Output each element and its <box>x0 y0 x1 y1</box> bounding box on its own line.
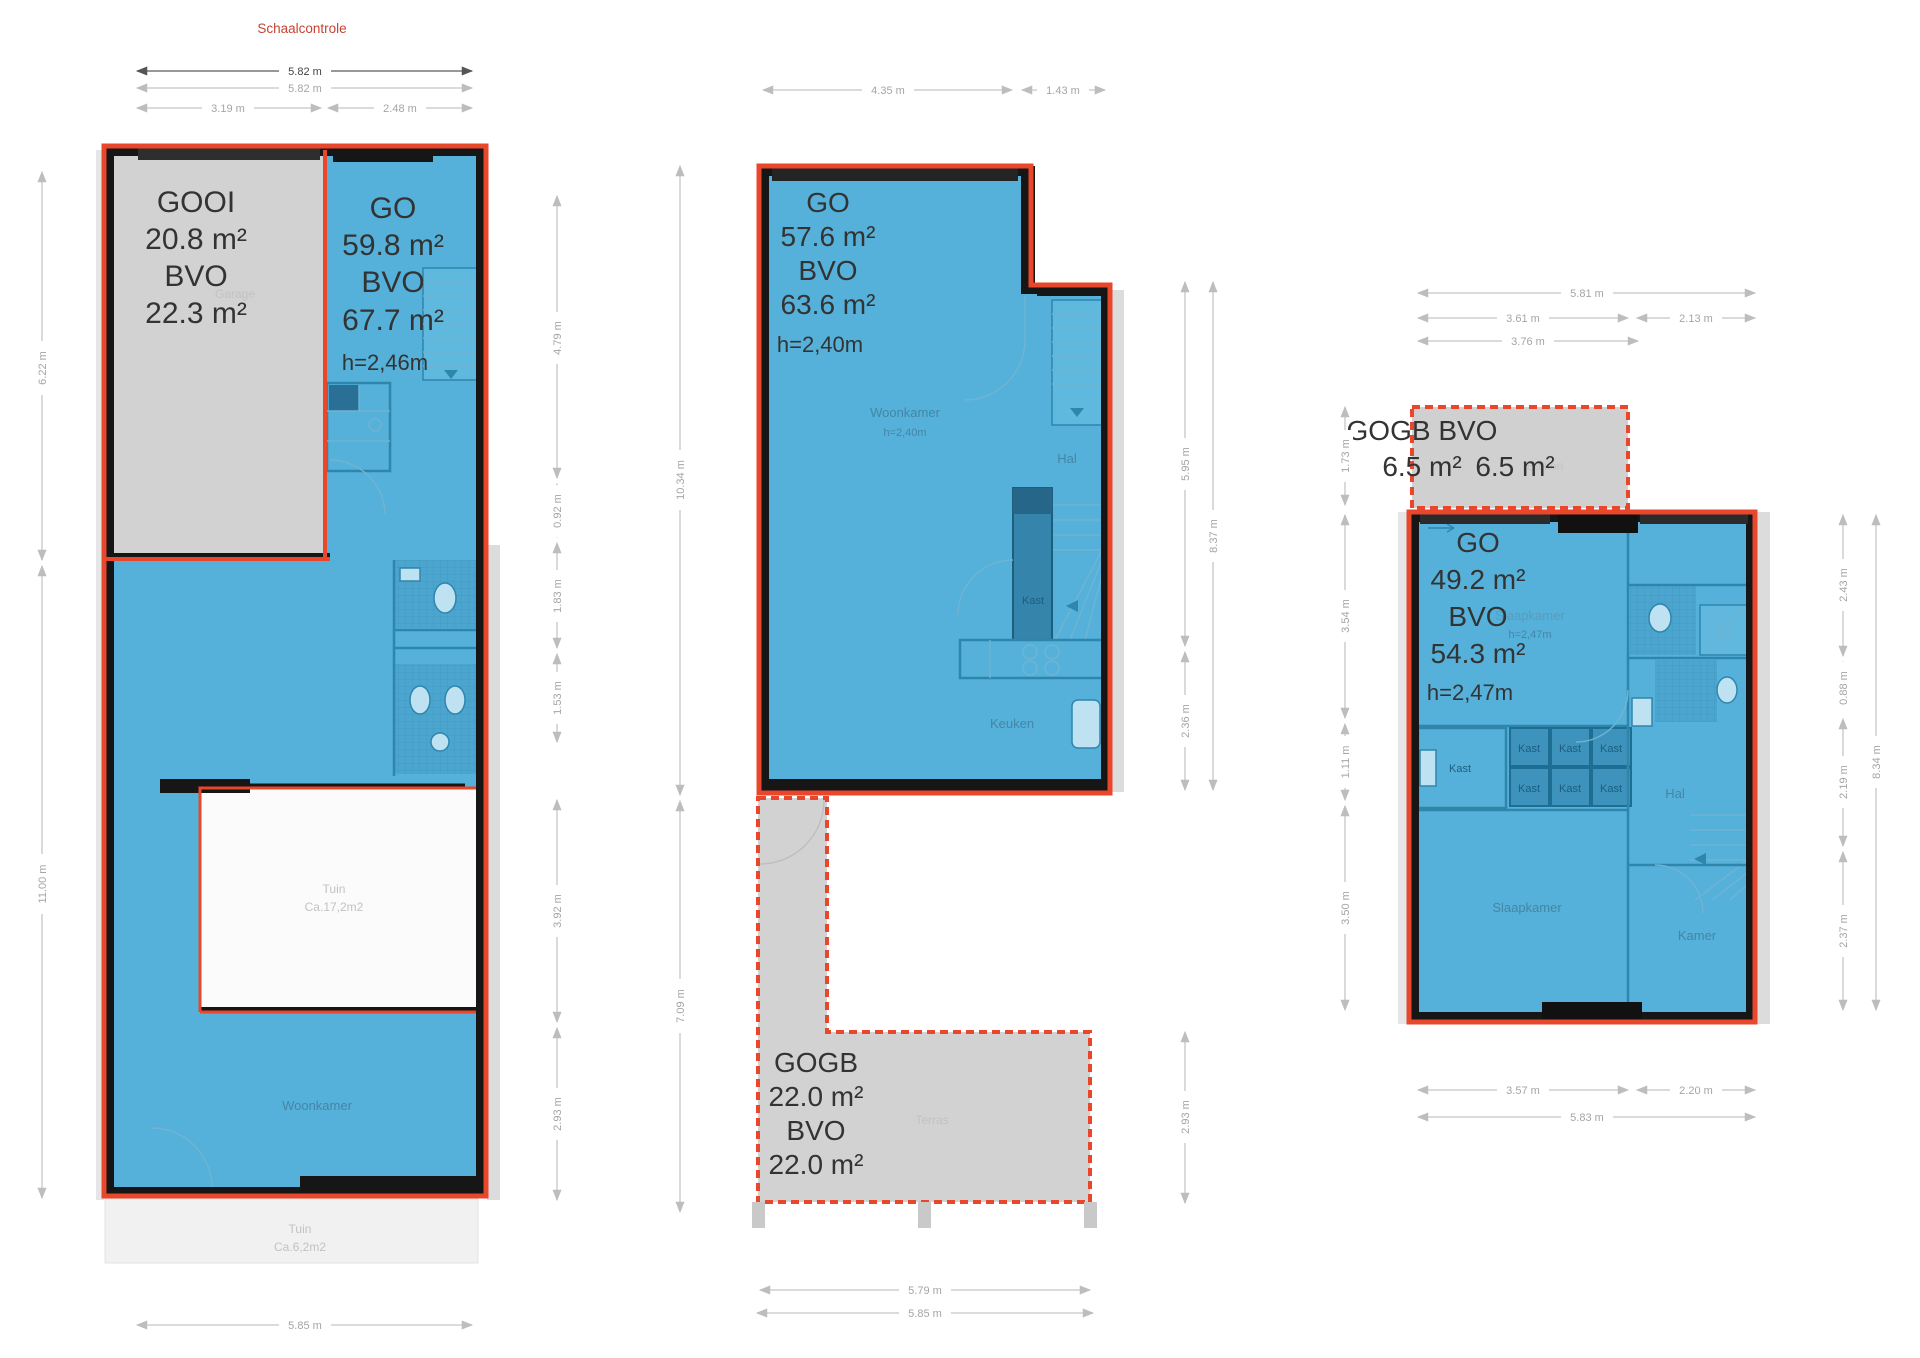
dim-label: 8.37 m <box>1208 519 1220 553</box>
room-height-woonkamer: h=2,40m <box>883 427 926 439</box>
dim-p1-right-6: 2.93 m <box>549 1028 565 1200</box>
dim-p1-top-total2: 5.82 m <box>137 81 472 96</box>
plan2-post <box>752 1202 765 1228</box>
dim-p1-right-1: 4.79 m <box>549 196 565 478</box>
dim-label: 10.34 m <box>675 460 687 500</box>
plan3-mat-right <box>1756 512 1770 1024</box>
dim-label: 2.19 m <box>1838 765 1850 799</box>
dim-label: 1.43 m <box>1046 85 1080 97</box>
dim-p3-right-1: 2.43 m <box>1835 515 1851 656</box>
plan1-wall-chunk-1 <box>160 779 250 793</box>
room-label-woonkamer: Woonkamer <box>282 1098 353 1113</box>
dim-label: 3.92 m <box>552 894 564 928</box>
room-label-kast: Kast <box>1518 783 1540 795</box>
dim-label: 1.73 m <box>1340 439 1352 473</box>
dim-label: 2.43 m <box>1838 568 1850 602</box>
plan3-wall-top-3 <box>1640 514 1748 524</box>
plan3-wall-top-1 <box>1420 514 1550 524</box>
area-label: 22.3 m² <box>145 297 247 330</box>
dim-label: 3.54 m <box>1340 599 1352 633</box>
dim-p3-right-2: 0.88 m <box>1835 662 1851 714</box>
room-label-garage: Garage <box>215 287 255 301</box>
plan2-post <box>1084 1202 1097 1228</box>
dim-label: 2.37 m <box>1838 914 1850 948</box>
area-label: GOOI <box>157 186 235 219</box>
area-label: BVO <box>798 255 857 286</box>
height-label: h=2,47m <box>1427 680 1513 705</box>
dim-p3-right-total: 8.34 m <box>1868 515 1884 1010</box>
dim-label: 2.48 m <box>383 103 417 115</box>
room-label-hal: Hal <box>1057 451 1077 466</box>
dim-p1-right-3: 1.83 m <box>549 543 565 648</box>
dim-label: 0.88 m <box>1838 671 1850 705</box>
area-label: 6.5 m² <box>1382 451 1461 482</box>
dim-label: 2.20 m <box>1679 1085 1713 1097</box>
dim-p2-left-lower: 7.09 m <box>672 801 688 1212</box>
dim-p3-left-4: 3.50 m <box>1337 806 1353 1010</box>
plan1-mat-right <box>487 545 500 1200</box>
page-title: Schaalcontrole <box>257 21 346 36</box>
floorplan-first-floor: GO 57.6 m² BVO 63.6 m² h=2,40m Woonkamer… <box>672 83 1221 1320</box>
dim-label: 2.13 m <box>1679 313 1713 325</box>
dim-label: 3.19 m <box>211 103 245 115</box>
area-label: 54.3 m² <box>1431 638 1526 669</box>
dim-p1-top-left: 3.19 m <box>137 101 321 116</box>
room-label-hal: Hal <box>1665 786 1685 801</box>
floorplan-second-floor: Balkon GOGB BVO 6.5 m² 6.5 m² <box>1337 286 1884 1124</box>
area-label: 20.8 m² <box>145 223 247 256</box>
dim-p1-left-upper: 6.22 m <box>34 172 50 560</box>
dim-label: 5.82 m <box>288 83 322 95</box>
dim-p3-left-2: 3.54 m <box>1337 515 1353 718</box>
dim-label: 5.83 m <box>1570 1112 1604 1124</box>
area-label: BVO <box>361 266 424 299</box>
area-label: 49.2 m² <box>1431 564 1526 595</box>
dim-label: 3.76 m <box>1511 336 1545 348</box>
dim-label: 1.83 m <box>552 579 564 613</box>
dim-label: 2.93 m <box>552 1097 564 1131</box>
dim-label: 1.53 m <box>552 681 564 715</box>
area-label: 22.0 m² <box>769 1081 864 1112</box>
floorplan-canvas: Schaalcontrole <box>0 0 1920 1358</box>
height-label: h=2,40m <box>777 332 863 357</box>
area-label: 59.8 m² <box>342 229 444 262</box>
area-label: BVO <box>786 1115 845 1146</box>
plan3-mat-left <box>1398 512 1407 1024</box>
dim-p2-left-upper: 10.34 m <box>672 166 688 795</box>
room-label-kamer: Kamer <box>1678 928 1717 943</box>
area-label: 6.5 m² <box>1475 451 1554 482</box>
dim-label: 3.50 m <box>1340 891 1352 925</box>
dim-p1-left-lower: 11.00 m <box>34 566 50 1198</box>
room-area-tuin2: Ca.6,2m2 <box>274 1240 326 1254</box>
dim-p3-left-3: 1.11 m <box>1337 724 1353 800</box>
dim-p3-top-total: 5.81 m <box>1418 286 1755 301</box>
dim-label: 4.79 m <box>552 321 564 355</box>
room-label-tuin2: Tuin <box>289 1222 312 1236</box>
plan2-post <box>918 1202 931 1228</box>
plan2-wall-top <box>772 168 1018 181</box>
area-label: GOGB <box>774 1047 858 1078</box>
dim-p2-bottom-1: 5.79 m <box>760 1282 1090 1297</box>
area-label: BVO <box>1448 601 1507 632</box>
plan1-garage-door <box>138 148 320 160</box>
room-label-slaapkamer: Slaapkamer <box>1492 900 1562 915</box>
plan1-wall-top <box>333 148 433 162</box>
dim-p2-top-right: 1.43 m <box>1022 83 1105 98</box>
dim-p1-right-4: 1.53 m <box>549 654 565 742</box>
plan1-bathroom <box>394 560 478 776</box>
area-label: 63.6 m² <box>781 289 876 320</box>
dim-label: 5.85 m <box>908 1308 942 1320</box>
dim-p3-top-right: 2.13 m <box>1637 311 1755 326</box>
dim-label: 11.00 m <box>37 865 49 904</box>
dim-label: 5.95 m <box>1180 447 1192 481</box>
room-label-kast: Kast <box>1600 783 1622 795</box>
dim-p3-right-3: 2.19 m <box>1835 719 1851 846</box>
height-label: h=2,46m <box>342 350 428 375</box>
area-label: 67.7 m² <box>342 304 444 337</box>
plan2-stairs-upper <box>1052 300 1102 425</box>
room-label-terras: Terras <box>915 1113 948 1127</box>
dim-p3-bottom-left: 3.57 m <box>1418 1082 1628 1097</box>
dim-label: 7.09 m <box>675 989 687 1023</box>
room-label-tuin: Tuin <box>323 882 346 896</box>
dim-p1-right-2: 0.92 m <box>549 484 565 537</box>
area-label: GOGB BVO <box>1347 415 1498 446</box>
dim-p2-top-left: 4.35 m <box>763 83 1012 98</box>
dim-label: 0.92 m <box>552 494 564 528</box>
room-label-kast: Kast <box>1559 783 1581 795</box>
dim-p2-right-total: 8.37 m <box>1205 282 1221 790</box>
dim-p2-bottom-2: 5.85 m <box>757 1305 1093 1320</box>
area-label: 57.6 m² <box>781 221 876 252</box>
dim-label: 6.22 m <box>37 351 49 385</box>
room-label-kast: Kast <box>1518 743 1540 755</box>
dim-label: 5.81 m <box>1570 288 1604 300</box>
dim-label: 1.11 m <box>1340 746 1352 779</box>
dim-p1-top-right: 2.48 m <box>328 101 472 116</box>
plan3-wall-bottom <box>1542 1002 1642 1022</box>
room-area-tuin: Ca.17,2m2 <box>305 900 364 914</box>
room-label-woonkamer: Woonkamer <box>870 405 941 420</box>
plan1-wall-chunk-2 <box>300 1176 480 1192</box>
dim-p1-bottom: 5.85 m <box>137 1317 472 1332</box>
room-label-kast: Kast <box>1600 743 1622 755</box>
area-label: GO <box>1456 527 1500 558</box>
area-label: GO <box>806 187 850 218</box>
dim-label: 5.79 m <box>908 1285 942 1297</box>
area-label: GO <box>370 192 417 225</box>
dim-p2-right-1: 5.95 m <box>1177 282 1193 646</box>
dim-label: 5.85 m <box>288 1320 322 1332</box>
plan1-tuin-cutout <box>200 788 476 1008</box>
dim-p3-top-left: 3.61 m <box>1418 311 1628 326</box>
dim-p1-top-total: 5.82 m <box>137 63 472 79</box>
dim-label: 2.36 m <box>1180 704 1192 738</box>
plan2-mat-right <box>1112 290 1124 792</box>
area-label: 22.0 m² <box>769 1149 864 1180</box>
dim-p2-right-3: 2.93 m <box>1177 1032 1193 1203</box>
room-label-kast: Kast <box>1022 595 1044 607</box>
dim-p2-right-2: 2.36 m <box>1177 652 1193 790</box>
room-label-keuken: Keuken <box>990 716 1034 731</box>
dim-label: 3.57 m <box>1506 1085 1540 1097</box>
dim-label: 2.93 m <box>1180 1100 1192 1134</box>
room-label-kast: Kast <box>1449 763 1471 775</box>
floorplan-ground-floor: GOOI 20.8 m² BVO 22.3 m² Garage GO 59.8 … <box>34 63 760 1332</box>
plan2-wall-bottom <box>768 779 1104 792</box>
dim-p3-right-4: 2.37 m <box>1835 852 1851 1010</box>
dim-label: 5.82 m <box>288 66 322 78</box>
room-label-kast: Kast <box>1559 743 1581 755</box>
dim-p1-right-5: 3.92 m <box>549 800 565 1022</box>
dim-p3-bottom-total: 5.83 m <box>1418 1109 1755 1124</box>
dim-p3-bottom-right: 2.20 m <box>1637 1082 1755 1097</box>
plan2-kast-column <box>1013 488 1052 640</box>
dim-label: 4.35 m <box>871 85 905 97</box>
dim-p3-top-left2: 3.76 m <box>1418 334 1638 349</box>
dim-label: 8.34 m <box>1871 745 1883 779</box>
dim-label: 3.61 m <box>1506 313 1540 325</box>
